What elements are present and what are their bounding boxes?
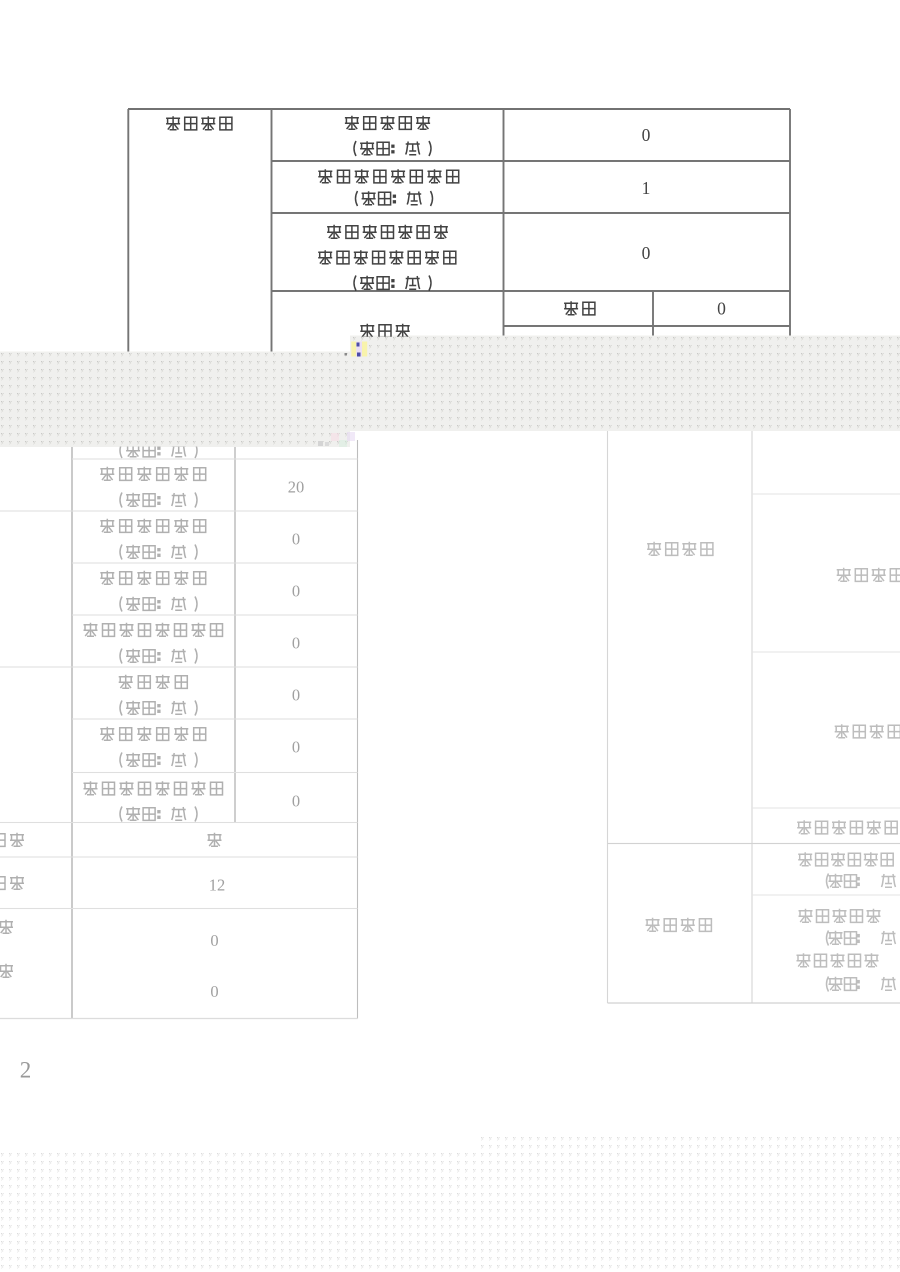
- svg-text:0: 0: [642, 125, 651, 145]
- svg-text:0: 0: [292, 686, 300, 705]
- svg-text:1: 1: [642, 178, 651, 198]
- svg-text:0: 0: [292, 792, 300, 811]
- svg-text:0: 0: [717, 298, 726, 318]
- svg-text:0: 0: [210, 931, 218, 950]
- svg-text:0: 0: [642, 243, 651, 263]
- svg-text:2: 2: [20, 1057, 32, 1082]
- svg-text:20: 20: [288, 478, 305, 497]
- svg-text:0: 0: [292, 634, 300, 653]
- svg-text:0: 0: [292, 582, 300, 601]
- svg-text:0: 0: [292, 738, 300, 757]
- svg-text:0: 0: [292, 530, 300, 549]
- svg-text:12: 12: [209, 876, 226, 895]
- svg-text:0: 0: [210, 982, 218, 1001]
